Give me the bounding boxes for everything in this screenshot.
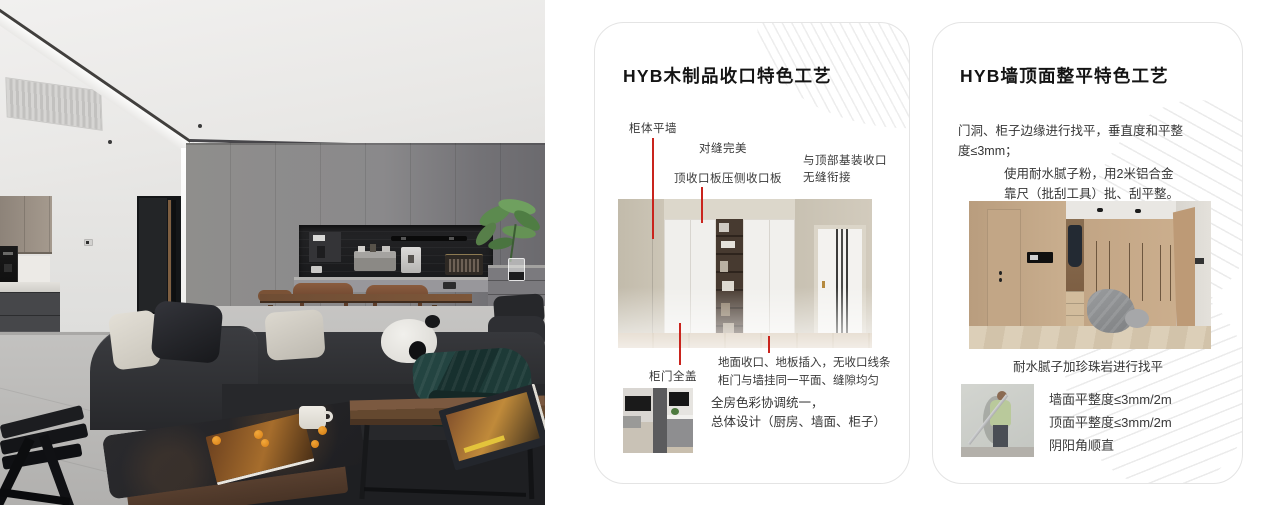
- callout-ceiling-joint: 与顶部基装收口 无缝衔接: [803, 153, 908, 188]
- callout-full-overlay-door: 柜门全盖: [649, 369, 697, 386]
- poster: HYB木制品收口特色工艺 柜体平墙 对缝完美 顶收口板压侧收口板 与顶部基装收口…: [0, 0, 1280, 505]
- leader-line: [679, 323, 681, 365]
- fruit: [212, 436, 221, 445]
- coffee-cups: [311, 266, 322, 273]
- spec-corner-straight: 阴阳角顺直: [1049, 435, 1114, 454]
- fruit: [311, 440, 319, 448]
- flush-door: [987, 209, 1021, 341]
- worker-thumb-image: [961, 384, 1034, 457]
- wall-plate: [1194, 258, 1204, 264]
- para-putty: 使用耐水腻子粉，用2米铝合金 靠尺（批刮工具）批、刮平整。: [1004, 164, 1224, 204]
- downlight: [1097, 208, 1103, 212]
- thumb-floor: [961, 447, 1034, 457]
- panda-ear: [425, 315, 440, 328]
- card-wall-leveling: HYB墙顶面整平特色工艺 门洞、柜子边缘进行找平，垂直度和平整 度≤3mm； 使…: [932, 22, 1243, 484]
- spec-wall-flatness: 墙面平整度≤3mm/2m: [1049, 389, 1172, 408]
- ceiling-spot: [108, 140, 112, 144]
- leader-line: [652, 138, 654, 239]
- pouf: [1125, 309, 1149, 328]
- note-floor-joint: 地面收口、地板插入，无收口线条 柜门与墙挂同一平面、缝隙均匀: [718, 354, 903, 390]
- open-closet-niche: [1066, 219, 1084, 326]
- dining-table: [260, 294, 472, 303]
- cloakroom-photo: [969, 201, 1211, 349]
- cushion-white: [264, 309, 325, 361]
- door-wood-trim: [168, 200, 171, 310]
- accessory-rail: [391, 236, 467, 241]
- callout-seam-perfect: 对缝完美: [699, 141, 747, 158]
- card-woodwork: HYB木制品收口特色工艺 柜体平墙 对缝完美 顶收口板压侧收口板 与顶部基装收口…: [594, 22, 910, 484]
- worker-pants: [993, 425, 1008, 448]
- smart-panel: [1027, 252, 1053, 263]
- light-switch: [84, 239, 93, 246]
- card1-title: HYB木制品收口特色工艺: [623, 63, 832, 88]
- closet-drawers: [1066, 291, 1084, 326]
- door-handle-dot: [999, 278, 1002, 282]
- photo-floor: [969, 326, 1211, 349]
- glass-vase: [508, 258, 525, 281]
- callout-cabinet-flush-wall: 柜体平墙: [629, 121, 677, 138]
- wall-outlet: [443, 282, 456, 289]
- leader-line: [701, 187, 703, 223]
- espresso-machine: [401, 247, 421, 273]
- note-color-line1: 全房色彩协调统一，: [711, 393, 824, 413]
- wardrobe-render-image: [618, 199, 872, 348]
- potted-plant: [468, 198, 545, 286]
- ceiling-spot: [198, 124, 202, 128]
- downlight: [1135, 209, 1141, 213]
- wall-coffee-module: [309, 232, 341, 262]
- thumb-plant: [671, 408, 679, 415]
- fruit: [318, 426, 327, 435]
- cushion-black: [151, 300, 224, 364]
- decor-hatch-card1: [749, 23, 909, 158]
- interior-thumb-image: [623, 388, 693, 453]
- spec-ceiling-flatness: 顶面平整度≤3mm/2m: [1049, 412, 1172, 431]
- accent-stool: [0, 405, 92, 505]
- note-color-line2: 总体设计（厨房、墙面、柜子）: [711, 412, 886, 432]
- thumb-cabinet-column: [653, 388, 667, 453]
- living-room-photo: [0, 0, 545, 505]
- hanging-clothes: [1068, 225, 1082, 267]
- door-handle-dot: [999, 271, 1002, 275]
- fruit: [261, 439, 269, 447]
- card2-title: HYB墙顶面整平特色工艺: [960, 63, 1169, 88]
- leader-line: [768, 336, 770, 353]
- thumb-oven: [669, 392, 689, 406]
- callout-top-trim-panel: 顶收口板压侧收口板: [674, 171, 782, 188]
- kitchen-countertop: [0, 282, 60, 292]
- thumb-tv: [625, 396, 651, 411]
- cup-rack: [354, 251, 396, 271]
- table-stretcher: [364, 487, 526, 497]
- hallway-doorway: [137, 196, 183, 314]
- light-reflection: [618, 287, 872, 348]
- coffee-niche: [299, 225, 493, 279]
- para-edge-leveling: 门洞、柜子边缘进行找平，垂直度和平整 度≤3mm；: [958, 121, 1213, 161]
- fruit: [254, 430, 263, 439]
- coffee-table-wood: [350, 394, 545, 505]
- caption-perlite: 耐水腻子加珍珠岩进行找平: [1013, 357, 1163, 377]
